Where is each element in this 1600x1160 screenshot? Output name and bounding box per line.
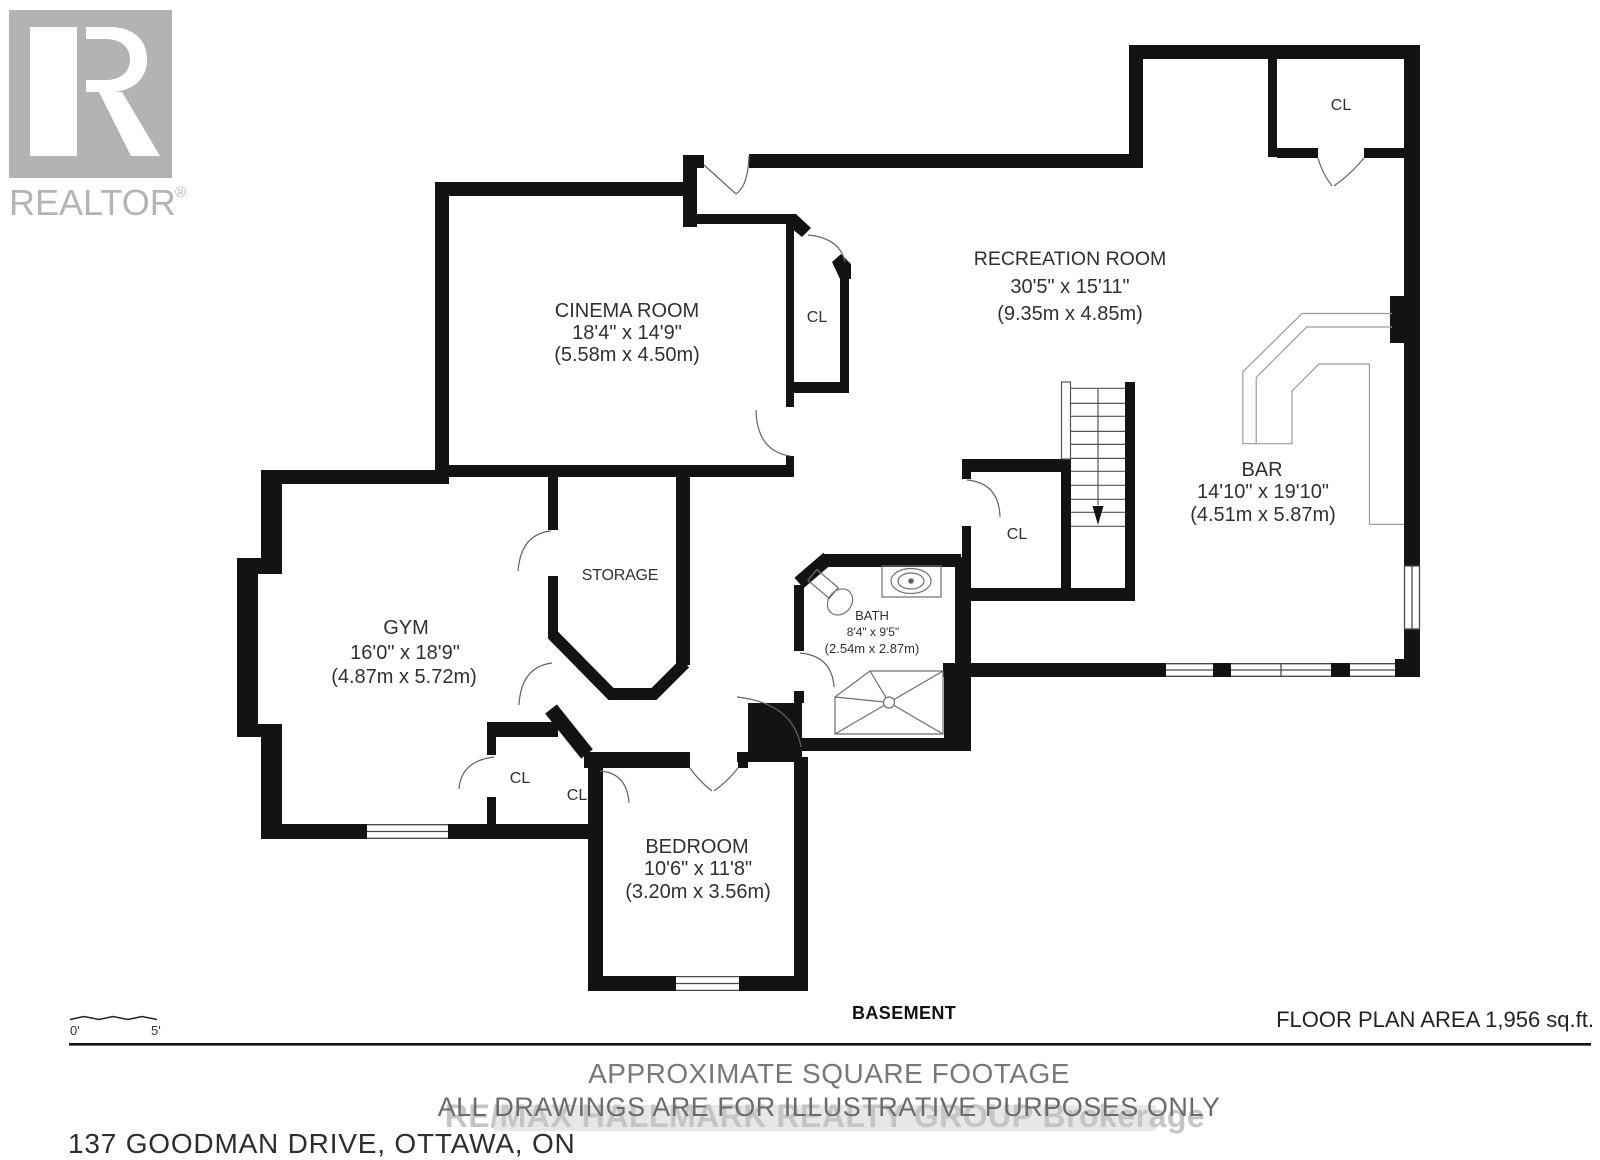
svg-text:CL: CL [567,787,588,804]
svg-text:0': 0' [70,1023,80,1038]
svg-text:BATH: BATH [855,608,889,623]
svg-text:30'5" x 15'11": 30'5" x 15'11" [1010,276,1129,298]
svg-text:CL: CL [1007,526,1028,543]
svg-text:(3.20m x 3.56m): (3.20m x 3.56m) [625,881,771,903]
svg-text:STORAGE: STORAGE [582,567,659,584]
svg-text:RECREATION ROOM: RECREATION ROOM [974,248,1166,270]
svg-text:BAR: BAR [1241,459,1282,481]
svg-text:FLOOR PLAN AREA 1,956 sq.ft.: FLOOR PLAN AREA 1,956 sq.ft. [1276,1007,1594,1032]
svg-text:16'0" x 18'9": 16'0" x 18'9" [350,642,460,664]
svg-text:8'4" x 9'5": 8'4" x 9'5" [847,625,899,639]
svg-text:CL: CL [1331,97,1352,114]
svg-text:CL: CL [510,770,531,787]
svg-text:BASEMENT: BASEMENT [852,1003,956,1023]
svg-text:18'4" x 14'9": 18'4" x 14'9" [572,322,682,344]
svg-text:137 GOODMAN DRIVE, OTTAWA, ON: 137 GOODMAN DRIVE, OTTAWA, ON [68,1128,576,1159]
svg-text:(9.35m x 4.85m): (9.35m x 4.85m) [997,303,1143,325]
svg-text:14'10" x 19'10": 14'10" x 19'10" [1197,481,1329,503]
svg-text:ALL DRAWINGS ARE FOR ILLUSTRAT: ALL DRAWINGS ARE FOR ILLUSTRATIVE PURPOS… [438,1092,1221,1122]
svg-text:5': 5' [151,1023,161,1038]
svg-text:(4.51m x 5.87m): (4.51m x 5.87m) [1190,504,1336,526]
svg-text:10'6" x 11'8": 10'6" x 11'8" [644,858,752,880]
svg-text:(2.54m x 2.87m): (2.54m x 2.87m) [825,641,920,656]
svg-text:APPROXIMATE SQUARE FOOTAGE: APPROXIMATE SQUARE FOOTAGE [588,1058,1070,1089]
svg-text:REALTOR: REALTOR [9,182,176,223]
svg-text:BEDROOM: BEDROOM [645,836,748,858]
svg-text:(4.87m x 5.72m): (4.87m x 5.72m) [331,666,477,688]
svg-text:CL: CL [807,309,828,326]
svg-text:GYM: GYM [383,617,429,639]
svg-text:®: ® [175,184,186,201]
svg-text:CINEMA ROOM: CINEMA ROOM [555,300,699,322]
svg-text:(5.58m x 4.50m): (5.58m x 4.50m) [554,344,700,366]
